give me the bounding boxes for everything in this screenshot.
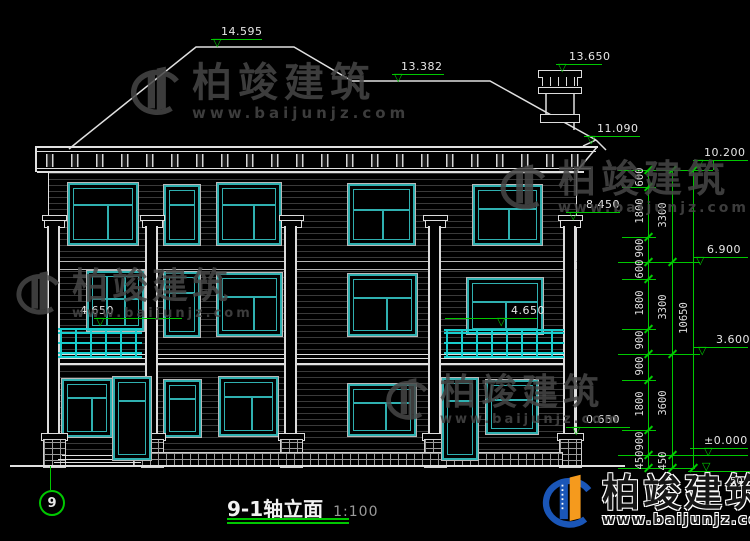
chimney-band — [538, 87, 582, 94]
chimney-collar — [540, 114, 580, 123]
title-underline — [227, 522, 349, 524]
elevation-marker-base-top: 0.650 ▽ — [566, 414, 630, 428]
elevation-label: 14.595 — [221, 26, 263, 38]
elevation-label: 4.650 — [511, 305, 545, 317]
elevation-marker-top-level: 10.200 ▽ — [693, 147, 748, 161]
title-underline — [227, 518, 349, 520]
elevation-label: 10.200 — [704, 147, 748, 159]
elevation-marker-secondary-ridge: 13.382 ▽ — [392, 61, 444, 75]
elevation-marker-right-eave: 11.090 ▽ — [584, 123, 640, 137]
elevation-marker-ground: ±0.000 ▽ — [690, 435, 748, 449]
chimney-crown — [542, 77, 578, 86]
axis-bubble: 9 — [39, 490, 65, 516]
elevation-triangle-icon: ▽ — [695, 158, 704, 169]
elevation-drawing-canvas: 600 1800 900 600 1800 900 900 1800 900 4… — [0, 0, 750, 541]
elevation-triangle-icon: ▽ — [569, 210, 578, 221]
elevation-triangle-icon: ▽ — [704, 446, 713, 457]
elevation-triangle-icon: ▽ — [213, 37, 222, 48]
elevation-triangle-icon: ▽ — [698, 345, 707, 356]
elevation-triangle-icon: ▽ — [587, 134, 596, 145]
brand-url: www.baijunjz.com — [602, 512, 750, 528]
elevation-label: 6.900 — [707, 244, 748, 256]
balcony-railing-right — [444, 329, 564, 358]
elevation-label: 0.650 — [586, 414, 630, 426]
elevation-triangle-icon: ▽ — [696, 255, 705, 266]
elevation-label: 8.450 — [586, 199, 620, 211]
brand-logo-icon — [538, 470, 596, 532]
elevation-marker-third-floor: 6.900 ▽ — [694, 244, 748, 258]
elevation-marker-main-ridge: 14.595 ▽ — [211, 26, 263, 40]
axis-number: 9 — [47, 496, 56, 511]
brand-logo: 柏竣建筑 www.baijunjz.com — [538, 470, 750, 532]
balcony-railing-left — [58, 328, 142, 358]
door-1f-right — [442, 378, 478, 460]
elevation-triangle-icon: ▽ — [96, 316, 105, 327]
elevation-label: 13.650 — [569, 51, 611, 63]
elevation-marker-chimney-top: 13.650 ▽ — [556, 51, 611, 65]
elevation-label: 3.600 — [716, 334, 750, 346]
door-1f-left — [113, 377, 151, 460]
elevation-triangle-icon: ▽ — [497, 316, 506, 327]
elevation-triangle-icon: ▽ — [558, 62, 567, 73]
elevation-triangle-icon: ▽ — [394, 72, 403, 83]
elevation-marker-balcony-left: 4.650 ▽ — [78, 305, 182, 319]
elevation-label-fragment: 50 — [730, 476, 743, 487]
elevation-triangle-icon: ▽ — [572, 425, 581, 436]
elevation-marker-balcony-right: 4.650 ▽ — [445, 305, 545, 319]
elevation-label: 13.382 — [401, 61, 444, 73]
elevation-marker-capital-level: 8.450 ▽ — [566, 199, 620, 213]
elevation-label: 11.090 — [597, 123, 640, 135]
brand-name: 柏竣建筑 — [602, 474, 750, 512]
elevation-marker-second-floor: 3.600 ▽ — [694, 334, 750, 348]
